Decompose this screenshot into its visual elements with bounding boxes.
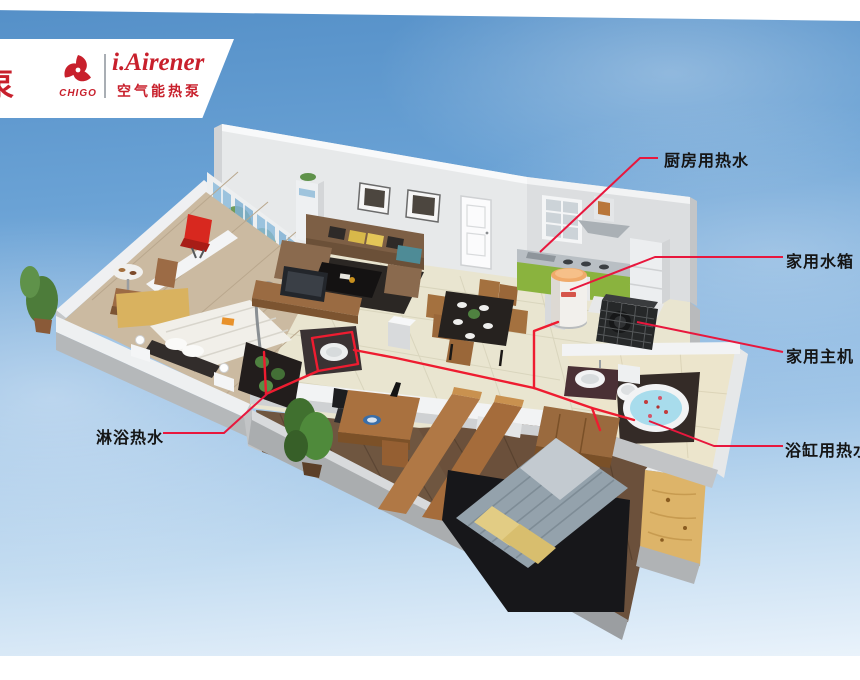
poster: 厨房用热水 家用水箱 家用主机 浴缸用热水 淋浴热水 泵 CHIGO i.Air…	[0, 0, 860, 680]
wall-picture	[358, 183, 390, 214]
product-subtitle: 空气能热泵	[117, 81, 202, 101]
callout-home-main-unit: 家用主机	[786, 343, 854, 367]
product-name: i.Airener	[112, 49, 204, 77]
callout-bathtub-hot-water: 浴缸用热水	[785, 437, 860, 461]
chigo-logo-icon	[60, 52, 96, 88]
chigo-wordmark: CHIGO	[57, 88, 99, 99]
logo-divider	[104, 54, 106, 98]
callout-shower-hot-water: 淋浴热水	[96, 424, 164, 448]
wall-picture	[406, 190, 440, 222]
entry-door	[461, 196, 491, 269]
fridge	[630, 238, 670, 304]
callout-home-water-tank: 家用水箱	[786, 248, 854, 272]
water-tank	[551, 268, 587, 329]
brand-banner: 泵 CHIGO i.Airener 空气能热泵	[0, 39, 234, 118]
bottom-white-strip	[0, 656, 860, 680]
clipped-title-character: 泵	[0, 60, 14, 105]
bathtub	[623, 384, 689, 432]
callout-kitchen-hot-water: 厨房用热水	[664, 147, 749, 171]
potted-plant	[20, 266, 58, 334]
